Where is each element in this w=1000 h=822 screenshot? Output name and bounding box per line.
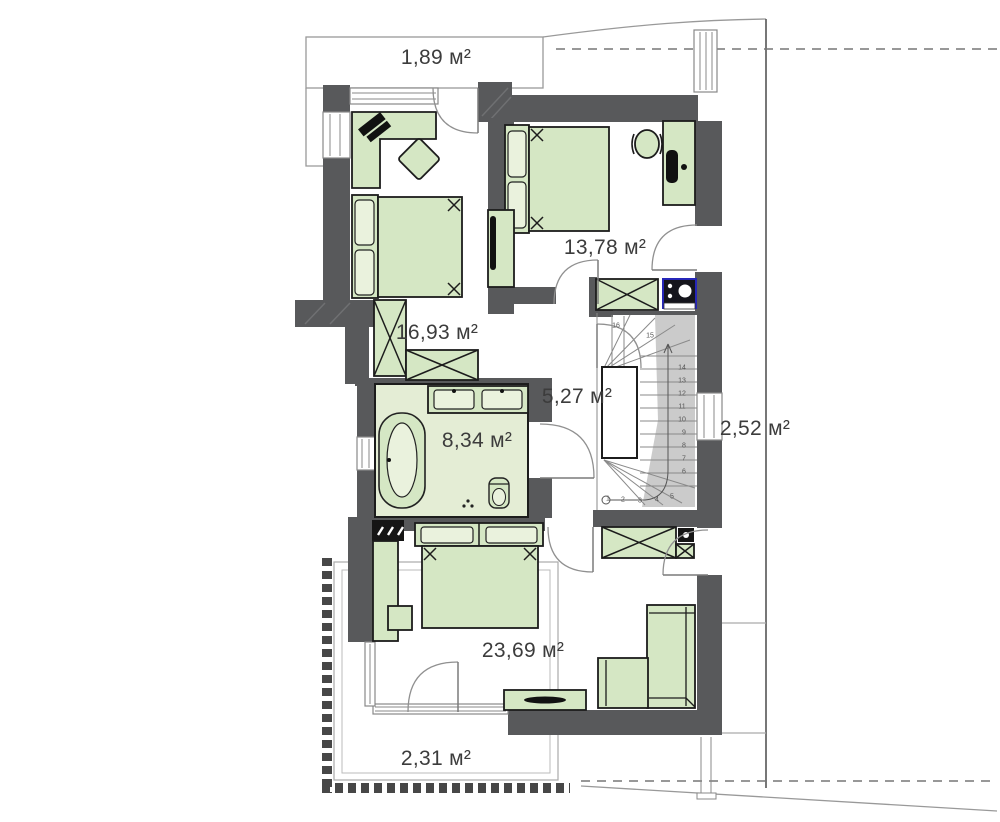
bedroom-right-furniture xyxy=(488,121,695,287)
stair-step-number: 16 xyxy=(612,323,620,330)
stair-step-number: 11 xyxy=(678,404,685,411)
area-label-hall: 5,27 м² xyxy=(542,385,612,409)
pillow xyxy=(421,527,473,543)
chair xyxy=(398,138,440,180)
stair-step-number: 13 xyxy=(678,378,686,385)
area-label-bedroom-bottom: 23,69 м² xyxy=(482,639,564,663)
bed-mattress xyxy=(422,546,538,628)
stair-step-number: 9 xyxy=(682,430,686,437)
pillow xyxy=(508,131,526,177)
stair-step-number: 15 xyxy=(646,333,654,340)
pillow xyxy=(486,527,537,543)
stair-step-number: 5 xyxy=(670,494,674,501)
tv-icon xyxy=(524,697,566,704)
nightstand xyxy=(388,606,412,630)
pillow xyxy=(355,200,374,245)
bed-mattress xyxy=(378,197,462,297)
bed-mattress xyxy=(529,127,609,231)
area-label-bedroom-left: 16,93 м² xyxy=(396,321,478,345)
monitor-icon xyxy=(666,150,678,183)
toilet xyxy=(489,478,509,508)
stair-step-number: 6 xyxy=(682,469,686,476)
stair-step-number: 14 xyxy=(678,365,686,372)
floor-plan: 1,89 м² 13,78 м² 16,93 м² 5,27 м² 8,34 м… xyxy=(0,0,1000,822)
stair-step-number: 1 xyxy=(606,496,610,503)
pillow xyxy=(355,250,374,295)
spotlights-icon xyxy=(372,520,404,541)
bathtub xyxy=(379,413,425,508)
stair-step-number: 2 xyxy=(621,497,625,504)
corner-sofa xyxy=(598,605,695,708)
area-label-balcony-top: 1,89 м² xyxy=(401,46,471,70)
stair-step-number: 7 xyxy=(682,456,686,463)
staircase xyxy=(597,313,697,510)
office-chair xyxy=(635,130,659,158)
area-label-balcony-bottom: 2,31 м² xyxy=(401,747,471,771)
area-label-bedroom-right: 13,78 м² xyxy=(564,236,646,260)
small-appliance-icon xyxy=(678,528,694,542)
mirror-icon xyxy=(490,216,496,270)
stair-step-number: 12 xyxy=(678,391,686,398)
area-label-roof-terrace: 2,52 м² xyxy=(720,417,790,441)
floor-plan-drawing xyxy=(0,0,1000,822)
stair-step-number: 8 xyxy=(682,443,686,450)
stair-step-number: 10 xyxy=(678,417,686,424)
washing-machine-icon xyxy=(663,279,696,309)
area-label-bathroom: 8,34 м² xyxy=(442,429,512,453)
stair-step-number: 3 xyxy=(638,498,642,505)
stair-step-number: 4 xyxy=(655,497,659,504)
